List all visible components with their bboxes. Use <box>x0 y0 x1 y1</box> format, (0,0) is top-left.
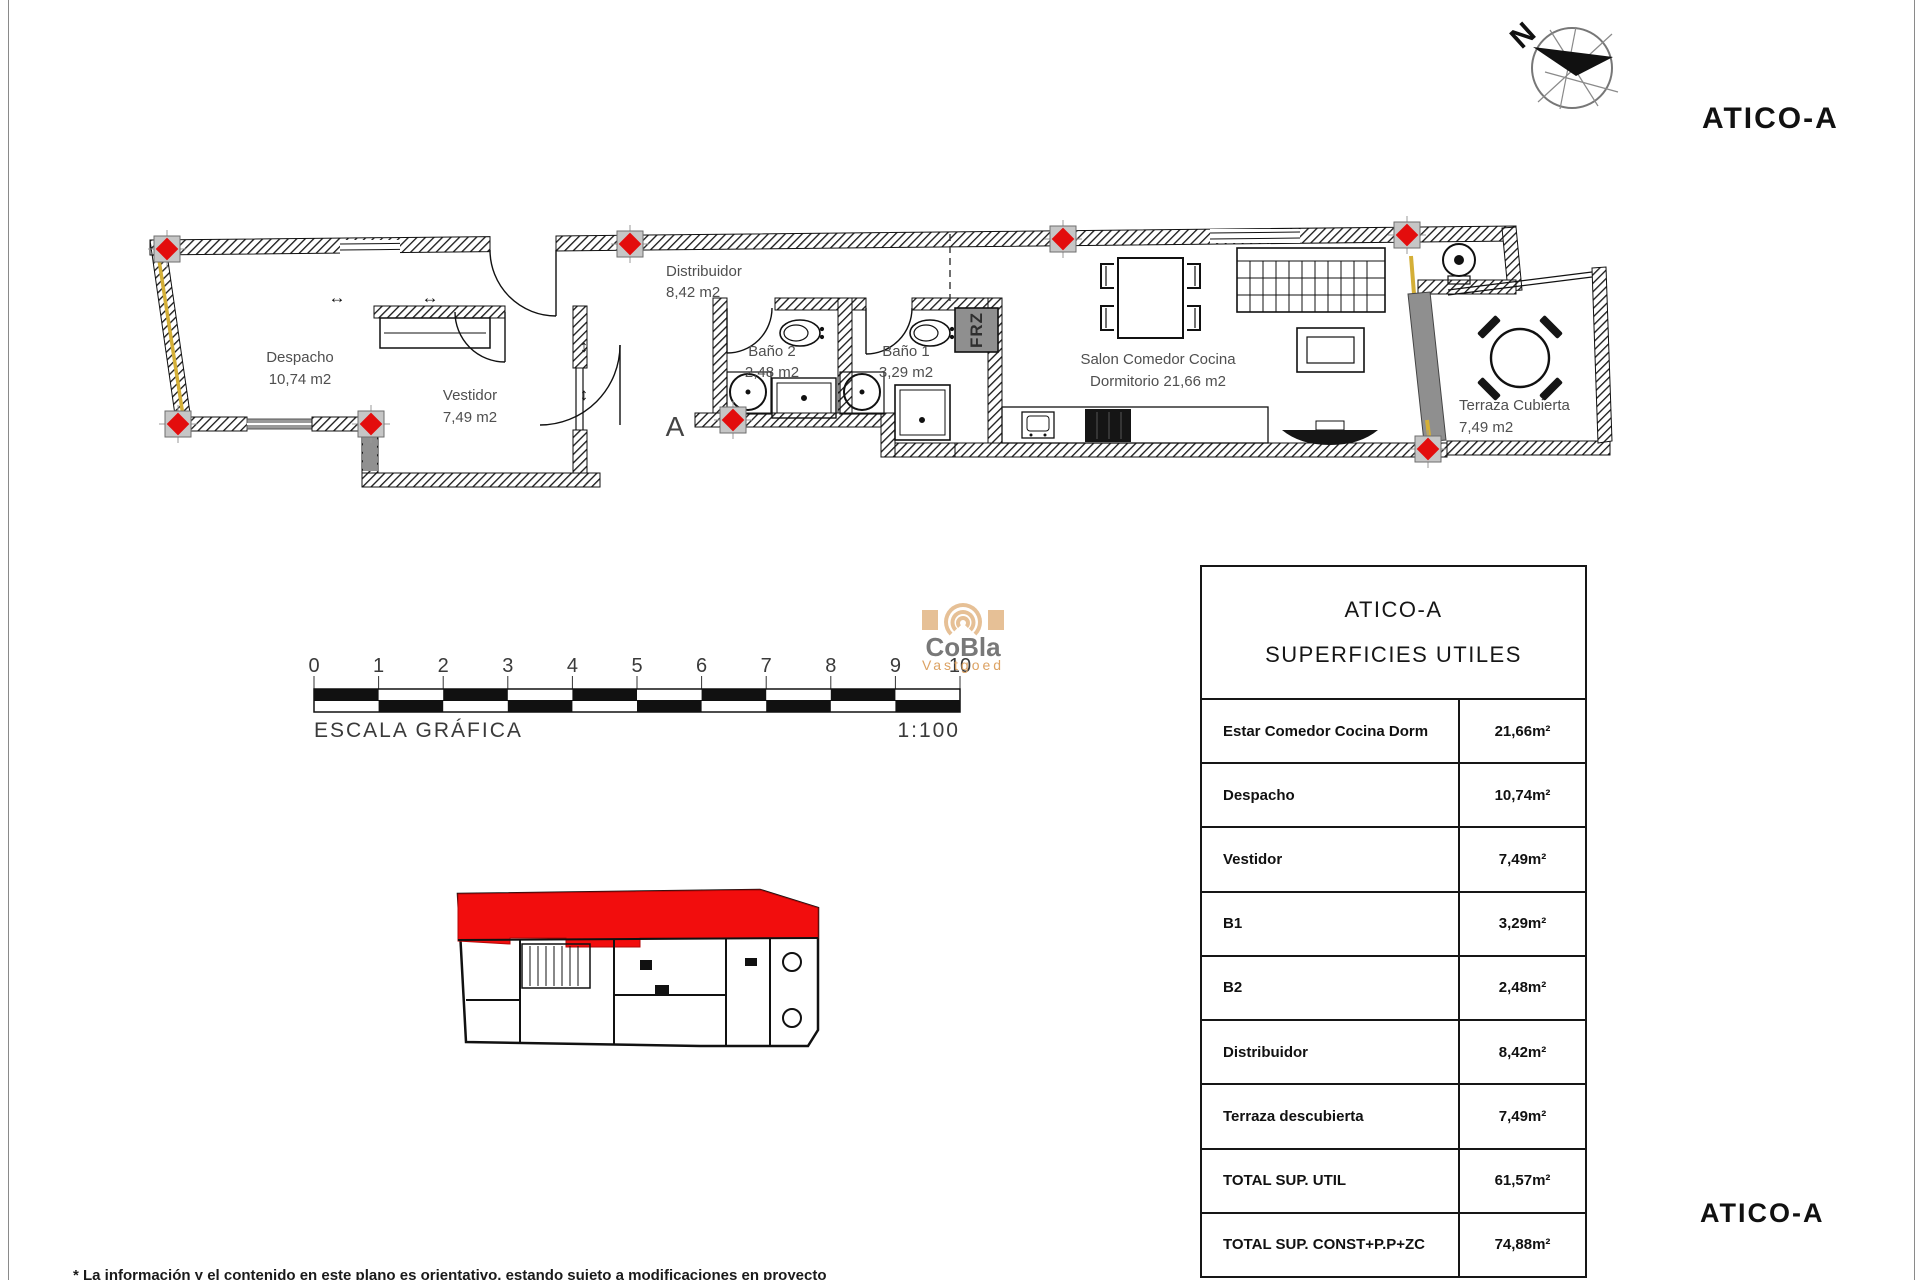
svg-text:7: 7 <box>761 655 772 677</box>
sheet-title-top: ATICO-A <box>1702 102 1839 136</box>
svg-text:↕: ↕ <box>580 385 589 404</box>
svg-text:8: 8 <box>825 655 836 677</box>
table-row: Estar Comedor Cocina Dorm 21,66m² <box>1202 698 1585 762</box>
partition-terraza <box>1408 292 1446 442</box>
svg-text:↔: ↔ <box>329 288 346 307</box>
table-row: TOTAL SUP. UTIL 61,57m² <box>1202 1148 1585 1212</box>
surfaces-table-rows: Estar Comedor Cocina Dorm 21,66m² Despac… <box>1202 698 1585 1276</box>
svg-text:5: 5 <box>631 655 642 677</box>
room-label-distribuidor: Distribuidor <box>666 263 742 280</box>
room-area-bano2: 2,48 m2 <box>745 364 799 381</box>
cobla-logo-icon <box>908 600 1018 636</box>
wall-despacho-bottom-b <box>312 417 358 431</box>
svg-text:1: 1 <box>373 655 384 677</box>
window-top <box>340 240 400 254</box>
scale-checker <box>314 689 960 712</box>
table-row: Distribuidor 8,42m² <box>1202 1019 1585 1083</box>
svg-text:4: 4 <box>567 655 578 677</box>
wall-vestidor-right-b <box>573 430 587 473</box>
sofa <box>1282 421 1378 445</box>
wall-bano2-top <box>775 298 838 310</box>
terrace-table <box>1477 315 1563 401</box>
boiler <box>1443 244 1475 284</box>
key-plan <box>458 890 818 1046</box>
room-area-despacho: 10,74 m2 <box>269 371 332 388</box>
table-row: Despacho 10,74m² <box>1202 762 1585 826</box>
sheet-title-bottom: ATICO-A <box>1700 1198 1824 1229</box>
table-title-unit: ATICO-A <box>1344 597 1442 623</box>
compass-needle-icon <box>1533 47 1613 76</box>
cobla-logo: CoBla Vastgoed <box>908 600 1018 673</box>
scale-ratio: 1:100 <box>897 719 960 742</box>
table-row: Terraza descubierta 7,49m² <box>1202 1083 1585 1147</box>
surfaces-table: ATICO-A SUPERFICIES UTILES Estar Comedor… <box>1200 565 1587 1278</box>
cooktop <box>1085 409 1131 442</box>
disclaimer-note: * La información y el contenido en este … <box>73 1267 827 1280</box>
kitchen-counter <box>1002 407 1268 443</box>
insulation-left <box>157 247 184 422</box>
room-area-bano1: 3,29 m2 <box>879 364 933 381</box>
surfaces-table-header: ATICO-A SUPERFICIES UTILES <box>1202 567 1585 698</box>
wall-terraza-right <box>1592 267 1612 443</box>
dining-table <box>1101 258 1200 338</box>
svg-text:0: 0 <box>308 655 319 677</box>
wall-terraza-bottom <box>1447 441 1610 455</box>
wall-vestidor-bottom <box>362 473 600 487</box>
svg-text:9: 9 <box>890 655 901 677</box>
room-labels: Despacho 10,74 m2 Vestidor 7,49 m2 Distr… <box>266 263 1570 442</box>
room-label-bano1: Baño 1 <box>882 343 930 360</box>
bed-cabinet-grid <box>1237 248 1385 312</box>
plan-sheet: FRZ <box>0 0 1920 1280</box>
room-label-despacho: Despacho <box>266 349 334 366</box>
svg-text:↕: ↕ <box>580 337 589 356</box>
table-row: B2 2,48m² <box>1202 955 1585 1019</box>
wall-bano2-left <box>713 298 727 413</box>
svg-text:↔: ↔ <box>422 288 439 307</box>
wall-step <box>881 413 895 457</box>
room-label-salon: Salon Comedor Cocina <box>1080 351 1236 368</box>
scale-ticks: 01 23 45 67 89 10 <box>308 655 971 677</box>
svg-text:2: 2 <box>438 655 449 677</box>
scale-bar: 01 23 45 67 89 10 <box>308 655 971 742</box>
room-area-distribuidor: 8,42 m2 <box>666 284 720 301</box>
svg-text:6: 6 <box>696 655 707 677</box>
wall-vestidor-top <box>374 306 505 318</box>
wall-salon-bottom <box>955 443 1447 457</box>
wall-top-left <box>150 237 490 255</box>
tv-unit <box>1297 328 1364 372</box>
room-label-bano2: Baño 2 <box>748 343 796 360</box>
wall-bano1-top-a <box>852 298 866 310</box>
window-top-2 <box>1210 229 1300 243</box>
table-row: B1 3,29m² <box>1202 891 1585 955</box>
svg-text:3: 3 <box>502 655 513 677</box>
room-label-terraza: Terraza Cubierta <box>1459 397 1571 414</box>
section-marker-a: A <box>666 411 685 442</box>
room-area-salon: Dormitorio 21,66 m2 <box>1090 373 1226 390</box>
room-area-terraza: 7,49 m2 <box>1459 419 1513 436</box>
scale-label: ESCALA GRÁFICA <box>314 719 523 742</box>
fridge-label: FRZ <box>967 312 986 348</box>
floor-plan: FRZ <box>148 216 1612 487</box>
north-compass: N <box>1504 16 1618 109</box>
room-area-vestidor: 7,49 m2 <box>443 409 497 426</box>
table-row: Vestidor 7,49m² <box>1202 826 1585 890</box>
insulation-right-top <box>1411 256 1414 294</box>
table-row: TOTAL SUP. CONST+P.P+ZC 74,88m² <box>1202 1212 1585 1276</box>
cobla-logo-subtitle: Vastgoed <box>908 658 1018 673</box>
table-title-surfaces: SUPERFICIES UTILES <box>1265 642 1522 668</box>
room-label-vestidor: Vestidor <box>443 387 497 404</box>
